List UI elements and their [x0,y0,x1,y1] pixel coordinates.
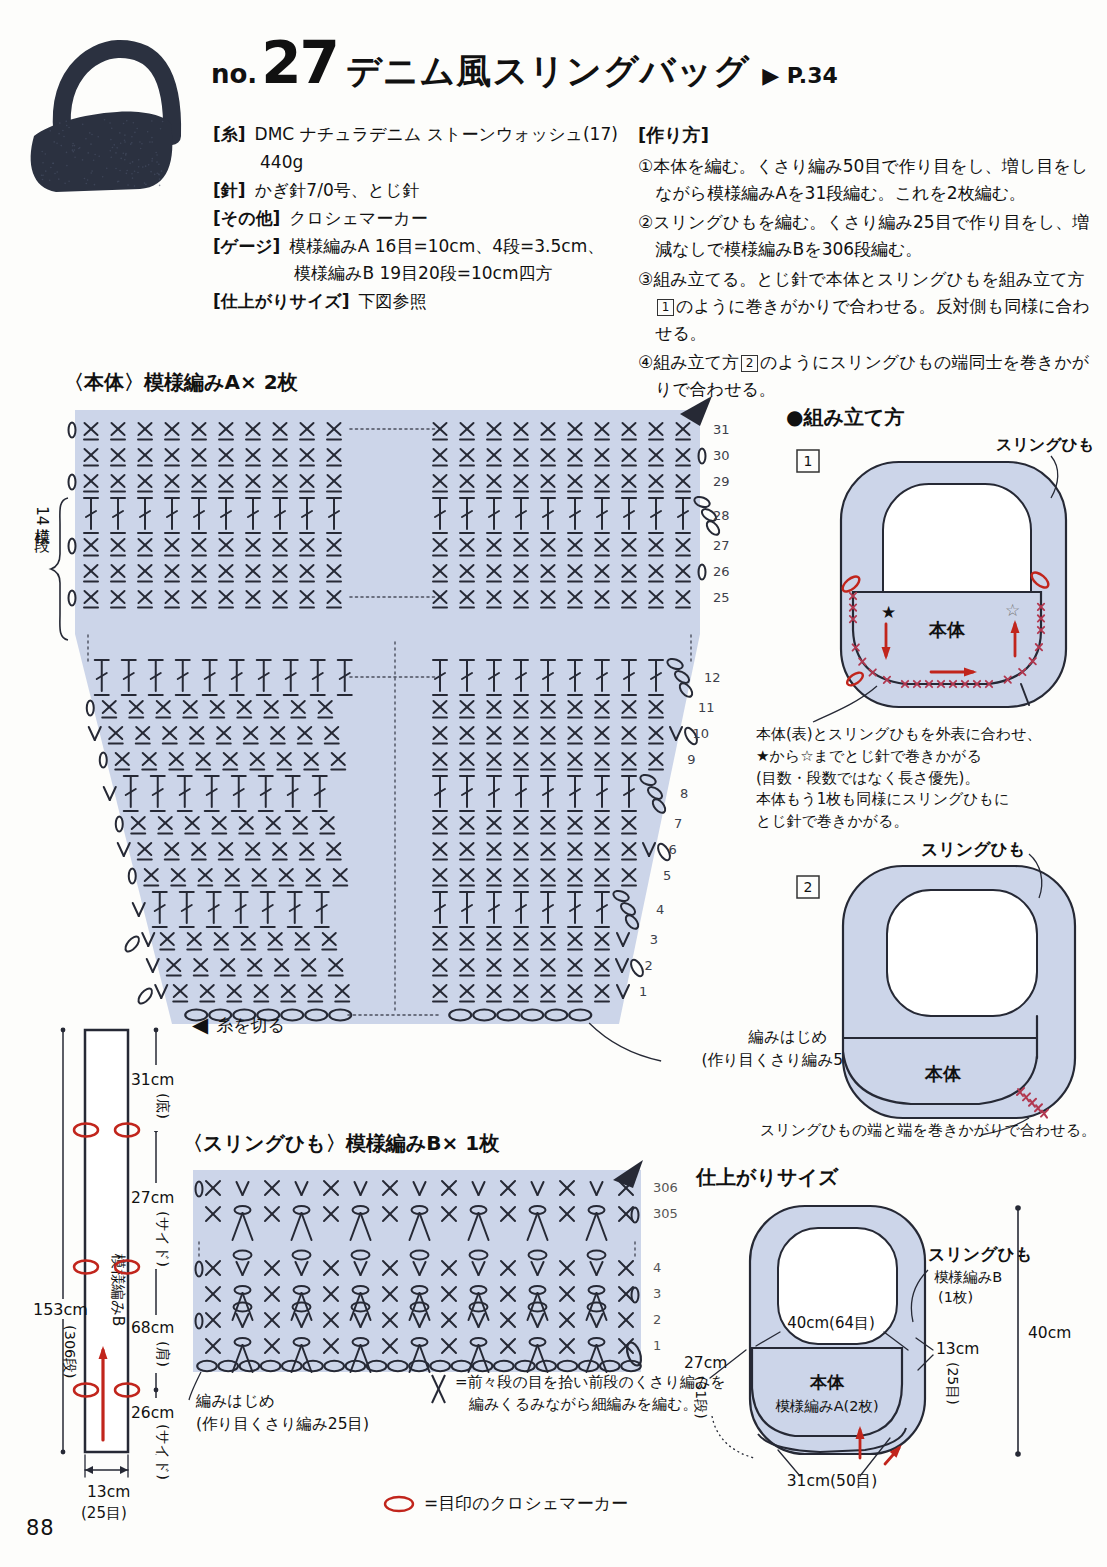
assembly-caption-1: 本体(表)とスリングひもを外表に合わせ、★から☆までとじ針で巻きかがる(目数・段… [756,724,1101,833]
svg-text:29: 29 [713,474,730,489]
svg-text:(31段): (31段) [693,1376,709,1419]
svg-text:25: 25 [713,590,730,605]
svg-text:30: 30 [713,448,730,463]
marker-legend: =目印のクロシェマーカー [382,1492,628,1515]
svg-text:スリングひも: スリングひも [996,435,1094,454]
step-number-box: 2 [741,355,758,372]
svg-text:模様編みB: 模様編みB [109,1254,127,1327]
svg-text:1: 1 [639,984,647,999]
svg-text:(1枚): (1枚) [938,1289,973,1305]
svg-text:模様編みA(2枚): 模様編みA(2枚) [775,1398,878,1414]
svg-text:(25目): (25目) [945,1362,961,1405]
instruction-step: ①本体を編む。くさり編み50目で作り目をし、増し目をしながら模様編みAを31段編… [638,153,1093,207]
svg-text:12: 12 [704,670,721,685]
svg-text:40cm(64目): 40cm(64目) [787,1314,875,1332]
instruction-step: ③組み立てる。とじ針で本体とスリングひもを組み立て方1のように巻きがかりで合わせ… [638,266,1093,348]
chart-a-title: 〈本体〉模様編みA× 2枚 [64,369,298,396]
bag-photo [22,36,202,201]
header-number: 27 [261,34,338,92]
instruction-step: ②スリングひもを編む。くさり編み25目で作り目をし、増減なしで模様編みBを306… [638,209,1093,263]
svg-text:6: 6 [668,842,676,857]
svg-text:2: 2 [653,1312,661,1327]
svg-text:13cm: 13cm [87,1483,130,1501]
finished-size-diagram: 40cm(64目)スリングひも模様編みB(1枚)13cm(25目)27cm(31… [680,1192,1107,1504]
strap-pattern-chart: 3063054321 [183,1156,703,1408]
chart-b-start-note: 編みはじめ (作り目くさり編み25目) [196,1390,369,1437]
svg-text:(サイド): (サイド) [155,1424,171,1480]
svg-text:(25目): (25目) [81,1504,127,1522]
svg-text:本体: 本体 [928,619,966,640]
svg-text:4: 4 [656,902,664,917]
assembly-diagram-1: 1★☆本体スリングひも [793,434,1103,722]
svg-text:3: 3 [650,932,658,947]
assembly-heading: ●組み立て方 [786,404,904,431]
svg-text:2: 2 [804,879,813,895]
svg-text:13cm: 13cm [936,1340,979,1358]
material-item: [ゲージ]模様編みA 16目=10cm、4段=3.5cm、 [213,233,643,261]
svg-text:306: 306 [653,1180,678,1195]
material-item: [糸]DMC ナチュラデニム ストーンウォッシュ(17) [213,121,643,149]
finished-size-heading: 仕上がりサイズ [696,1164,838,1191]
materials-list: [糸]DMC ナチュラデニム ストーンウォッシュ(17)440g[針]かぎ針7/… [213,121,643,316]
svg-text:153cm: 153cm [33,1300,88,1319]
chart-b-title: 〈スリングひも〉模様編みB× 1枚 [183,1130,499,1157]
svg-text:4: 4 [653,1260,661,1275]
header-no-label: no. [211,59,257,89]
svg-text:2: 2 [644,958,652,973]
svg-text:模様編みB: 模様編みB [934,1269,1002,1285]
page-number: 88 [26,1516,55,1540]
pattern-page: no. 27 デニム風スリングバッグ ▶ P.34 [糸]DMC ナチュラデニム… [0,0,1107,1567]
svg-text:☆: ☆ [1005,600,1020,620]
svg-text:(サイド): (サイド) [155,1211,171,1267]
chart-a-repeat-note: 1模様4段 [34,506,50,636]
svg-text:(肩): (肩) [155,1341,171,1367]
assembly-caption-2: スリングひもの端と端を巻きかがりで合わせる。 [760,1120,1107,1142]
svg-text:1: 1 [804,453,813,469]
page-header: no. 27 デニム風スリングバッグ ▶ P.34 [211,34,838,95]
material-item: [その他]クロシェマーカー [213,205,643,233]
step-number-box: 1 [657,299,674,316]
svg-text:5: 5 [663,868,671,883]
svg-text:31cm(50目): 31cm(50目) [787,1472,878,1490]
instructions: [作り方] ①本体を編む。くさり編み50目で作り目をし、増し目をしながら模様編み… [638,121,1093,405]
material-item: [仕上がりサイズ]下図参照 [213,288,643,316]
svg-text:(底): (底) [155,1093,171,1119]
svg-text:40cm: 40cm [1028,1324,1071,1342]
svg-text:★: ★ [881,602,896,622]
svg-text:27: 27 [713,538,730,553]
svg-text:28: 28 [713,508,730,523]
svg-text:27cm: 27cm [131,1189,174,1207]
svg-text:10: 10 [693,726,710,741]
svg-text:68cm: 68cm [131,1319,174,1337]
assembly-diagram-2: 2本体 [793,852,1103,1116]
svg-text:26: 26 [713,564,730,579]
svg-text:11: 11 [698,700,715,715]
svg-text:7: 7 [674,816,682,831]
svg-text:31: 31 [713,422,730,437]
material-item: [針]かぎ針7/0号、とじ針 [213,177,643,205]
instructions-heading: [作り方] [638,121,1093,150]
crochet-marker-icon [382,1494,418,1514]
page-title: デニム風スリングバッグ [346,48,750,95]
svg-text:本体: 本体 [809,1372,845,1392]
svg-text:1: 1 [653,1338,661,1353]
svg-text:3: 3 [653,1286,661,1301]
svg-text:26cm: 26cm [131,1404,174,1422]
page-reference: ▶ P.34 [762,63,838,88]
svg-text:(306段): (306段) [62,1325,78,1379]
svg-text:305: 305 [653,1206,678,1221]
tall-sc-stitch-icon [428,1372,450,1406]
svg-text:本体: 本体 [924,1063,962,1084]
svg-text:8: 8 [680,786,688,801]
body-pattern-chart: 31302928272625121110987654321 [48,394,738,1094]
svg-text:スリングひも: スリングひも [928,1244,1032,1264]
svg-text:9: 9 [687,752,695,767]
svg-text:31cm: 31cm [131,1071,174,1089]
instructions-steps: ①本体を編む。くさり編み50目で作り目をし、増し目をしながら模様編みAを31段編… [638,153,1093,404]
